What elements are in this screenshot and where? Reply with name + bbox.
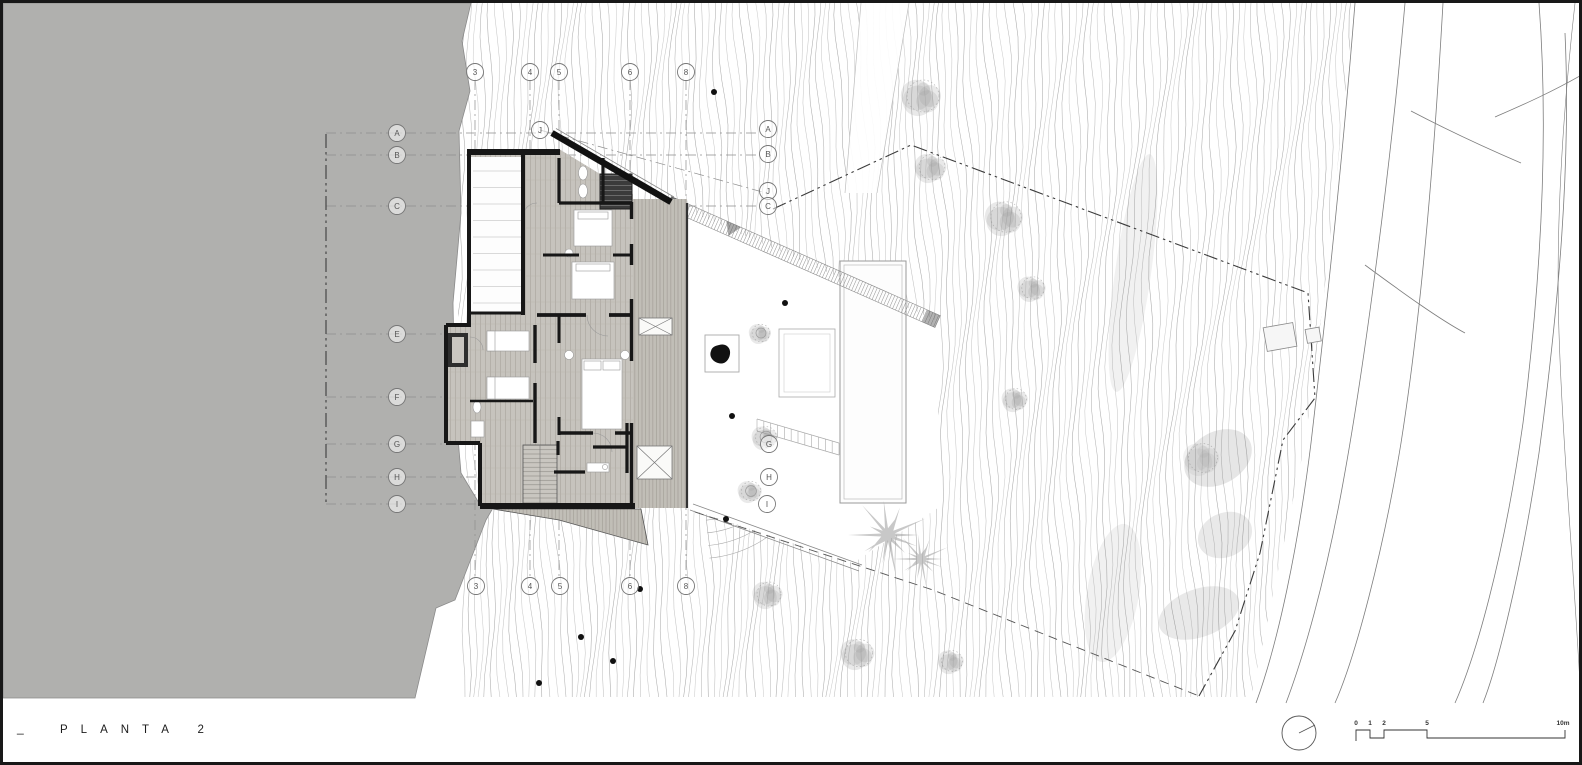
point-marker	[536, 680, 542, 686]
svg-text:5: 5	[558, 582, 563, 591]
grid-marker-6: 6	[622, 64, 639, 81]
tree	[1017, 277, 1045, 302]
svg-text:B: B	[394, 151, 399, 160]
point-marker	[610, 658, 616, 664]
site-plan-svg: ABCEFGHIABJCGHI3456834568J 012510m	[3, 3, 1582, 765]
svg-text:C: C	[765, 202, 771, 211]
tree	[752, 582, 782, 609]
grid-marker-I: I	[759, 496, 776, 513]
grid-marker-H: H	[761, 469, 778, 486]
scale-tick-label: 1	[1368, 720, 1372, 727]
grid-marker-C: C	[760, 198, 777, 215]
grid-marker-G: G	[761, 436, 778, 453]
point-marker	[711, 89, 717, 95]
tree	[840, 639, 874, 670]
scale-bar: 012510m	[1354, 720, 1570, 741]
point-marker	[782, 300, 788, 306]
svg-text:C: C	[394, 202, 400, 211]
tree	[1002, 389, 1028, 413]
wc-fixture	[473, 401, 481, 413]
scale-tick-label: 10m	[1556, 720, 1569, 727]
grid-marker-8: 8	[678, 578, 695, 595]
svg-text:A: A	[765, 125, 771, 134]
svg-text:I: I	[766, 500, 768, 509]
building-plan	[446, 129, 687, 546]
svg-text:B: B	[765, 150, 770, 159]
grid-marker-4: 4	[522, 578, 539, 595]
svg-text:8: 8	[684, 68, 689, 77]
grid-marker-E: E	[389, 326, 406, 343]
tree	[985, 202, 1023, 236]
svg-text:6: 6	[628, 68, 633, 77]
road-lines	[1256, 3, 1582, 703]
grid-marker-5: 5	[552, 578, 569, 595]
svg-text:A: A	[394, 129, 400, 138]
grid-marker-I: I	[389, 496, 406, 513]
grid-marker-A: A	[389, 125, 406, 142]
grid-marker-F: F	[389, 389, 406, 406]
wc-fixture	[579, 184, 588, 198]
svg-text:6: 6	[628, 582, 633, 591]
point-marker	[729, 413, 735, 419]
svg-text:E: E	[394, 330, 399, 339]
grid-marker-3: 3	[468, 578, 485, 595]
grid-marker-C: C	[389, 198, 406, 215]
svg-text:F: F	[395, 393, 400, 402]
terrace	[666, 197, 940, 563]
north-symbol	[1282, 716, 1316, 750]
svg-text:J: J	[538, 126, 542, 135]
point-marker	[723, 516, 729, 522]
grid-marker-4: 4	[522, 64, 539, 81]
shower	[471, 421, 484, 437]
grid-marker-8: 8	[678, 64, 695, 81]
svg-text:3: 3	[474, 582, 479, 591]
scale-tick-label: 2	[1382, 720, 1386, 727]
svg-text:H: H	[766, 473, 772, 482]
scale-tick-label: 5	[1425, 720, 1429, 727]
lower-deck-wedge	[493, 509, 648, 545]
grid-marker-J: J	[532, 122, 549, 139]
grid-marker-A: A	[760, 121, 777, 138]
gray-landmass	[3, 3, 493, 698]
grid-marker-3: 3	[467, 64, 484, 81]
fire-pit	[705, 335, 739, 372]
grid-marker-G: G	[389, 436, 406, 453]
grid-marker-J: J	[760, 183, 777, 200]
grid-marker-B: B	[760, 146, 777, 163]
svg-text:4: 4	[528, 582, 533, 591]
svg-text:4: 4	[528, 68, 533, 77]
grid-marker-5: 5	[551, 64, 568, 81]
svg-text:J: J	[766, 187, 770, 196]
grid-marker-B: B	[389, 147, 406, 164]
terrace-lounge	[779, 329, 835, 397]
access-path-band	[845, 3, 909, 193]
svg-text:G: G	[766, 440, 772, 449]
svg-text:5: 5	[557, 68, 562, 77]
drawing-sheet: ABCEFGHIABJCGHI3456834568J 012510m _ PLA…	[0, 0, 1582, 765]
wc-fixture	[579, 166, 588, 180]
tree	[914, 154, 946, 183]
svg-text:3: 3	[473, 68, 478, 77]
svg-text:G: G	[394, 440, 400, 449]
point-marker	[578, 634, 584, 640]
svg-text:I: I	[396, 500, 398, 509]
grid-marker-6: 6	[622, 578, 639, 595]
grid-marker-H: H	[389, 469, 406, 486]
storage-box	[448, 333, 468, 367]
scale-tick-label: 0	[1354, 720, 1358, 727]
tree	[901, 80, 941, 116]
svg-text:8: 8	[684, 582, 689, 591]
svg-text:H: H	[394, 473, 400, 482]
closet-band	[471, 157, 521, 313]
